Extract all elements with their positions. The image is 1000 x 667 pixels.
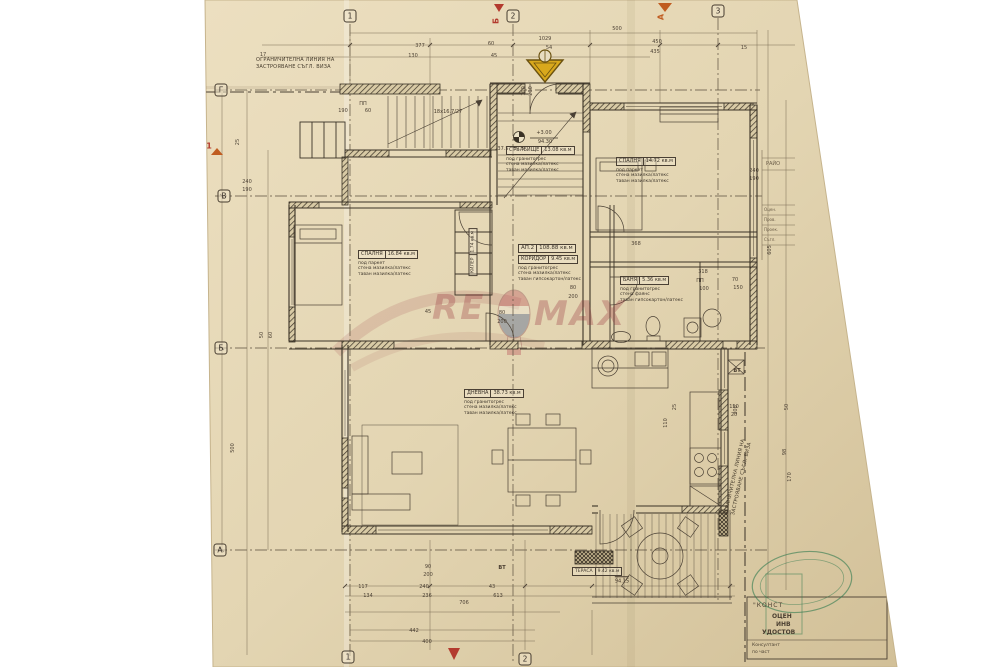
floorplan-drawing [0,0,1000,667]
paper-crease [205,86,345,89]
blueprint-page: ОГРАНИЧИТЕЛНА ЛИНИЯ НА ЗАСТРОЯВАНЕ СЪГЛ.… [0,0,1000,667]
paper-sheet [205,0,897,667]
